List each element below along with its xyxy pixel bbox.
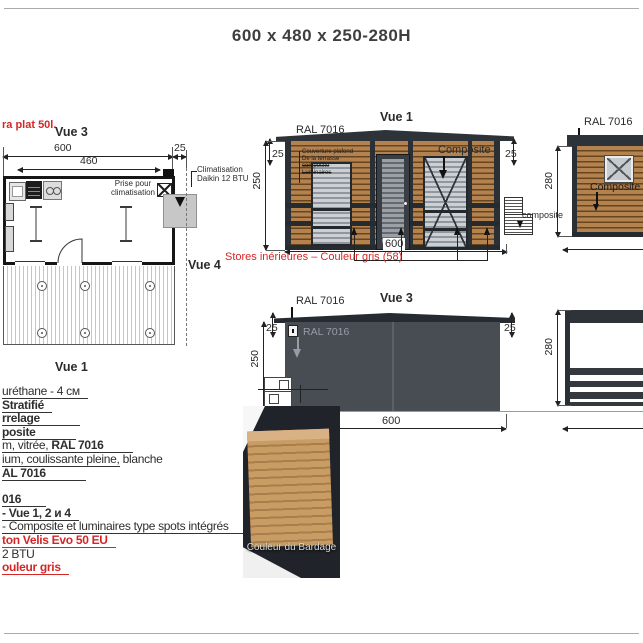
down-arrow-icon bbox=[517, 221, 523, 228]
vue3-ral-inner-label: RAL 7016 bbox=[303, 326, 349, 338]
ext-line bbox=[3, 147, 4, 176]
vue1-dim-25-right-line bbox=[513, 139, 514, 165]
vue4-dim-280-line bbox=[557, 310, 558, 406]
vue4-dim-280: 280 bbox=[543, 338, 555, 356]
vue1-composite-label: Composite bbox=[438, 144, 491, 156]
vue4-roof-band bbox=[565, 310, 643, 323]
spec-line: - Vue 1, 2 и 4 bbox=[2, 506, 254, 520]
window-sash-divider bbox=[425, 210, 466, 213]
leader-line bbox=[487, 233, 488, 261]
sketch-box bbox=[269, 394, 279, 404]
door-swing-arc bbox=[57, 238, 83, 264]
vue1-dim-600: 600 bbox=[383, 238, 405, 250]
plan-dim-600: 600 bbox=[54, 142, 72, 154]
spot-light bbox=[37, 281, 47, 291]
vue2-ral-label: RAL 7016 bbox=[584, 116, 633, 128]
sketch-line bbox=[300, 385, 301, 403]
ext-line bbox=[506, 244, 507, 254]
window-sash-divider bbox=[313, 226, 350, 229]
wood-sample-top-edge bbox=[247, 429, 329, 442]
wall-fixture bbox=[5, 203, 14, 221]
spec-text: 016 bbox=[2, 492, 46, 507]
ac-socket-note: Prise pour climatisation bbox=[106, 180, 160, 197]
spec-line: uréthane - 4 см bbox=[2, 384, 254, 398]
facade-post bbox=[468, 141, 472, 250]
ext-line bbox=[266, 141, 285, 142]
vue4-bottom-dim-line bbox=[563, 428, 643, 429]
sheet-bottom-border bbox=[4, 633, 639, 634]
facade-post bbox=[572, 146, 577, 237]
vue1-dim-250: 250 bbox=[251, 172, 263, 190]
entry-door bbox=[376, 154, 410, 250]
plan-dim-25: 25 bbox=[174, 142, 186, 154]
leader-line bbox=[299, 151, 300, 183]
spec-line: - Composite et luminaires type spots int… bbox=[2, 519, 254, 533]
kitchen-sink bbox=[9, 182, 26, 201]
ext-line bbox=[557, 405, 571, 406]
hob-burner bbox=[53, 187, 61, 195]
plan-dim-25-line bbox=[173, 156, 186, 157]
arrow-stem bbox=[297, 337, 299, 349]
arrow-stem bbox=[443, 156, 445, 170]
spec-line: posite bbox=[2, 425, 254, 439]
ext-line bbox=[506, 414, 507, 428]
ext-line bbox=[557, 236, 572, 237]
down-arrow-icon bbox=[175, 197, 185, 207]
terrace-rail bbox=[570, 368, 643, 375]
vue3-dim-25-right-line bbox=[511, 313, 512, 337]
vue1-dim-25-left: 25 bbox=[272, 148, 284, 160]
sink-basin bbox=[12, 186, 23, 197]
arrow-stem bbox=[596, 192, 598, 204]
spec-text-part: blanche bbox=[120, 452, 163, 466]
page-title: 600 x 480 x 250-280H bbox=[0, 26, 643, 46]
vue1-dim-250-line bbox=[265, 141, 266, 250]
spec-text: ouleur gris bbox=[2, 560, 69, 575]
down-arrow-icon bbox=[293, 349, 301, 358]
section-cut-line-vue4 bbox=[186, 168, 187, 346]
vue2-roof bbox=[567, 135, 643, 146]
terrace-rail bbox=[570, 381, 643, 387]
spec-line: 2 BTU bbox=[2, 547, 254, 561]
spec-line: m, vitrée, RAL 7016 bbox=[2, 438, 254, 452]
plan-vue3-label: Vue 3 bbox=[55, 125, 88, 139]
plan-dim-460-line bbox=[18, 169, 160, 170]
spec-line: Stratifié bbox=[2, 398, 254, 412]
spot-light bbox=[80, 281, 90, 291]
vue2-dim-280: 280 bbox=[543, 172, 555, 190]
ceiling-note-line2: De la terrasse bbox=[302, 156, 339, 162]
ext-line bbox=[186, 150, 187, 168]
leader-line bbox=[191, 171, 192, 187]
window-sash-divider bbox=[313, 208, 350, 211]
spec-text: 2 BTU bbox=[2, 547, 35, 561]
wood-sample bbox=[247, 429, 333, 548]
spec-text: AL 7016 bbox=[2, 466, 86, 481]
ceiling-note-line1: Couverture plafond bbox=[302, 149, 353, 155]
facade-seam bbox=[392, 322, 394, 412]
spec-line: ouleur gris bbox=[2, 560, 254, 574]
stove-grill bbox=[28, 184, 40, 196]
sheet-top-border bbox=[4, 8, 639, 9]
vue2-dim-280-line bbox=[557, 146, 558, 237]
door-handle bbox=[404, 202, 407, 205]
sketch-line bbox=[258, 389, 328, 390]
ext-line bbox=[557, 146, 572, 147]
vue1-dim-25-left-line bbox=[269, 139, 270, 165]
spec-line: rrelage bbox=[2, 411, 254, 425]
column-symbol bbox=[120, 206, 132, 242]
ceiling-note: Couverture plafond De la terrasse compos… bbox=[302, 149, 366, 177]
ceiling-note-line4: Luminaires bbox=[302, 170, 331, 176]
facade-post bbox=[494, 141, 500, 250]
vue1-title: Vue 1 bbox=[380, 110, 413, 124]
corner-block bbox=[163, 169, 174, 177]
plan-vue1-label: Vue 1 bbox=[55, 360, 88, 374]
spot-light bbox=[145, 281, 155, 291]
vue3-title: Vue 3 bbox=[380, 291, 413, 305]
photo-caption: Couleur du Bardage bbox=[246, 542, 337, 553]
kitchen-hob bbox=[43, 181, 62, 200]
column-symbol bbox=[30, 206, 42, 242]
spec-line: ium, coulissante pleine, blanche bbox=[2, 452, 254, 466]
down-arrow-icon bbox=[593, 204, 599, 211]
terrace-rail bbox=[570, 402, 643, 406]
stores-note: Stores inérieures – Couleur gris (58) bbox=[225, 251, 402, 263]
vue3-ral-label: RAL 7016 bbox=[296, 295, 345, 307]
plan-vue4-label: Vue 4 bbox=[188, 258, 221, 272]
spot-light bbox=[37, 328, 47, 338]
specs-list: uréthane - 4 см Stratifié rrelage posite… bbox=[2, 384, 254, 574]
ac-unit-sketch bbox=[264, 391, 292, 407]
spec-text-part: m, vitrée, bbox=[2, 438, 51, 452]
facade-base bbox=[572, 232, 643, 237]
water-heater-note: ra plat 50l. bbox=[2, 119, 56, 131]
vue2-bottom-dim-line bbox=[563, 249, 643, 250]
terrace-rail bbox=[570, 392, 643, 399]
kitchen-stove bbox=[26, 181, 42, 199]
spot-light bbox=[145, 328, 155, 338]
vue3-dim-25-left-line bbox=[272, 313, 273, 337]
facade-post bbox=[370, 141, 375, 250]
ac-socket-note-line2: climatisation bbox=[111, 188, 155, 197]
small-window bbox=[605, 156, 633, 182]
spec-line: 016 bbox=[2, 492, 254, 506]
vue3-dim-600: 600 bbox=[382, 415, 400, 427]
spec-line: AL 7016 bbox=[2, 466, 254, 480]
spec-line: ton Velis Evo 50 EU bbox=[2, 533, 254, 547]
cladding-photo: Couleur du Bardage bbox=[243, 406, 340, 578]
spec-text: rrelage bbox=[2, 411, 80, 426]
ceiling-note-line3: composite bbox=[302, 163, 329, 169]
down-arrow-icon bbox=[439, 170, 447, 179]
drawing-sheet: 600 x 480 x 250-280H ra plat 50l. Vue 3 … bbox=[0, 0, 643, 643]
vent-box bbox=[288, 325, 298, 337]
wall-fixture bbox=[5, 226, 14, 252]
spec-text: uréthane - 4 см bbox=[2, 384, 88, 399]
leader-line bbox=[457, 233, 458, 261]
vue3-dim-250: 250 bbox=[249, 350, 261, 368]
facade-post bbox=[285, 141, 291, 250]
ac-unit-note: Climatisation Daikin 12 BTU bbox=[197, 166, 249, 183]
spec-text-part: ium, coulissante pleine, bbox=[2, 452, 120, 467]
spec-text-part: RAL 7016 bbox=[51, 438, 103, 452]
vent-dot bbox=[292, 329, 294, 333]
spot-light bbox=[80, 328, 90, 338]
vue1-dim-25-right: 25 bbox=[505, 148, 517, 160]
ac-unit-note-line2: Daikin 12 BTU bbox=[197, 174, 249, 183]
ext-line bbox=[557, 310, 571, 311]
ac-outdoor-unit bbox=[163, 194, 197, 228]
plan-dim-460: 460 bbox=[80, 155, 98, 167]
